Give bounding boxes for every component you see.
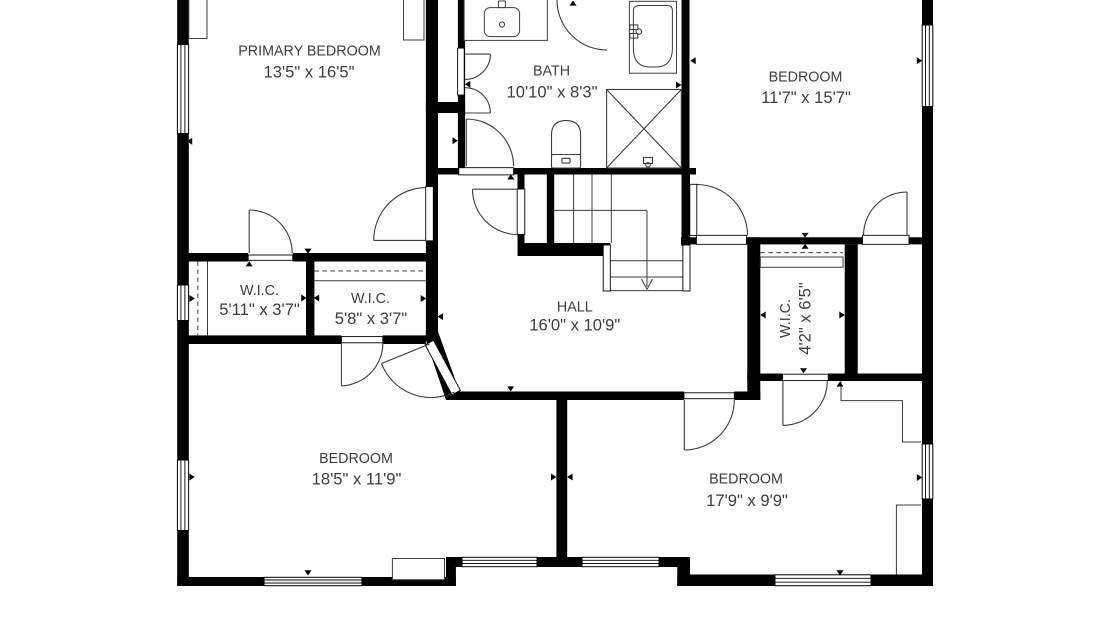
svg-text:5'11" x 3'7": 5'11" x 3'7" [219,300,300,319]
svg-text:HALL: HALL [557,299,593,315]
svg-text:W.I.C.: W.I.C. [351,291,390,307]
svg-text:4'2" x 6'5": 4'2" x 6'5" [796,282,815,355]
svg-text:BEDROOM: BEDROOM [769,69,843,85]
svg-text:13'5" x 16'5": 13'5" x 16'5" [263,62,354,81]
svg-text:17'9" x 9'9": 17'9" x 9'9" [706,491,788,510]
svg-text:PRIMARY BEDROOM: PRIMARY BEDROOM [238,44,380,60]
svg-text:11'7" x 15'7": 11'7" x 15'7" [761,88,851,107]
svg-text:W.I.C.: W.I.C. [240,283,279,299]
svg-text:BEDROOM: BEDROOM [709,472,783,488]
svg-text:BATH: BATH [533,63,570,79]
svg-text:16'0" x 10'9": 16'0" x 10'9" [529,316,620,335]
svg-text:W.I.C.: W.I.C. [778,299,794,338]
svg-text:10'10" x 8'3": 10'10" x 8'3" [506,82,597,101]
svg-text:18'5" x 11'9": 18'5" x 11'9" [312,469,402,488]
svg-text:5'8" x 3'7": 5'8" x 3'7" [335,309,408,328]
svg-text:BEDROOM: BEDROOM [319,451,393,467]
